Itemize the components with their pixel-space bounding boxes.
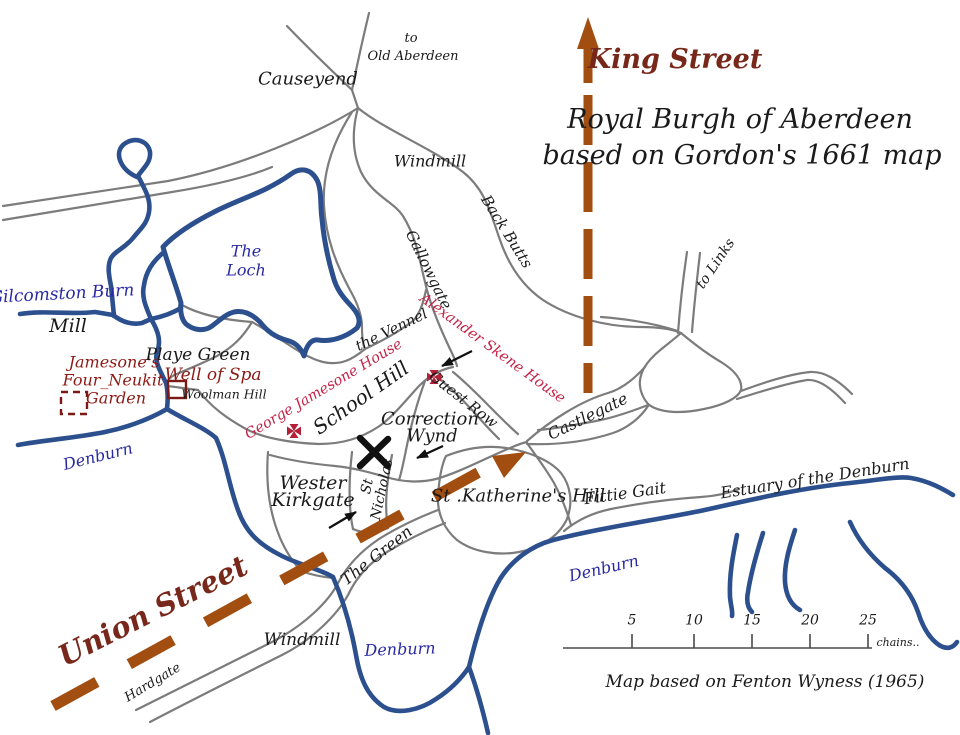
label-playe-green: Playe Green [146, 347, 251, 365]
label-king-street: King Street [588, 46, 763, 74]
label-wester-kirkgate-2: Kirkgate [271, 491, 354, 511]
george-jamesone-house-cross-icon [287, 424, 301, 438]
label-jamesone-garden-3: Garden [86, 391, 146, 408]
scale-tick-20: 20 [801, 614, 819, 629]
label-mill: Mill [49, 317, 87, 337]
label-to-old-aberdeen-2: Old Aberdeen [368, 50, 459, 64]
label-windmill-bottom: Windmill [264, 632, 341, 650]
scale-tick-15: 15 [743, 614, 761, 629]
label-denburn-mid: Denburn [364, 640, 436, 659]
scale-tick-25: 25 [859, 614, 877, 629]
label-causeyend: Causeyend [258, 71, 358, 90]
map-title-line2: based on Gordon's 1661 map [542, 142, 941, 170]
label-st-katherines-hill: St .Katherine's Hill [431, 488, 605, 507]
map-attribution: Map based on Fenton Wyness (1965) [606, 674, 925, 692]
map-title-line1: Royal Burgh of Aberdeen [567, 106, 913, 134]
label-woolman-hill: Woolman Hill [181, 387, 266, 400]
label-to-old-aberdeen-1: to [404, 32, 417, 46]
union-street-arrow-icon [492, 452, 526, 478]
label-the-loch-2: Loch [226, 263, 266, 280]
jamesone-garden-marker [61, 392, 87, 414]
label-the-loch-1: The [231, 244, 261, 261]
scale-tick-10: 10 [685, 614, 703, 629]
label-well-of-spa: Well of Spa [164, 367, 261, 385]
correction-wynd-pointer-arrow [417, 446, 443, 458]
label-windmill-top: Windmill [394, 154, 466, 171]
aberdeen-1661-map: King Street Royal Burgh of Aberdeen base… [0, 0, 960, 735]
scale-unit: chains.. [876, 637, 919, 649]
label-jamesone-garden-2: Four_Neukit [63, 373, 164, 390]
scale-bar [563, 634, 872, 648]
label-correction-wynd-2: Wynd [406, 428, 457, 447]
scale-tick-5: 5 [628, 614, 637, 629]
